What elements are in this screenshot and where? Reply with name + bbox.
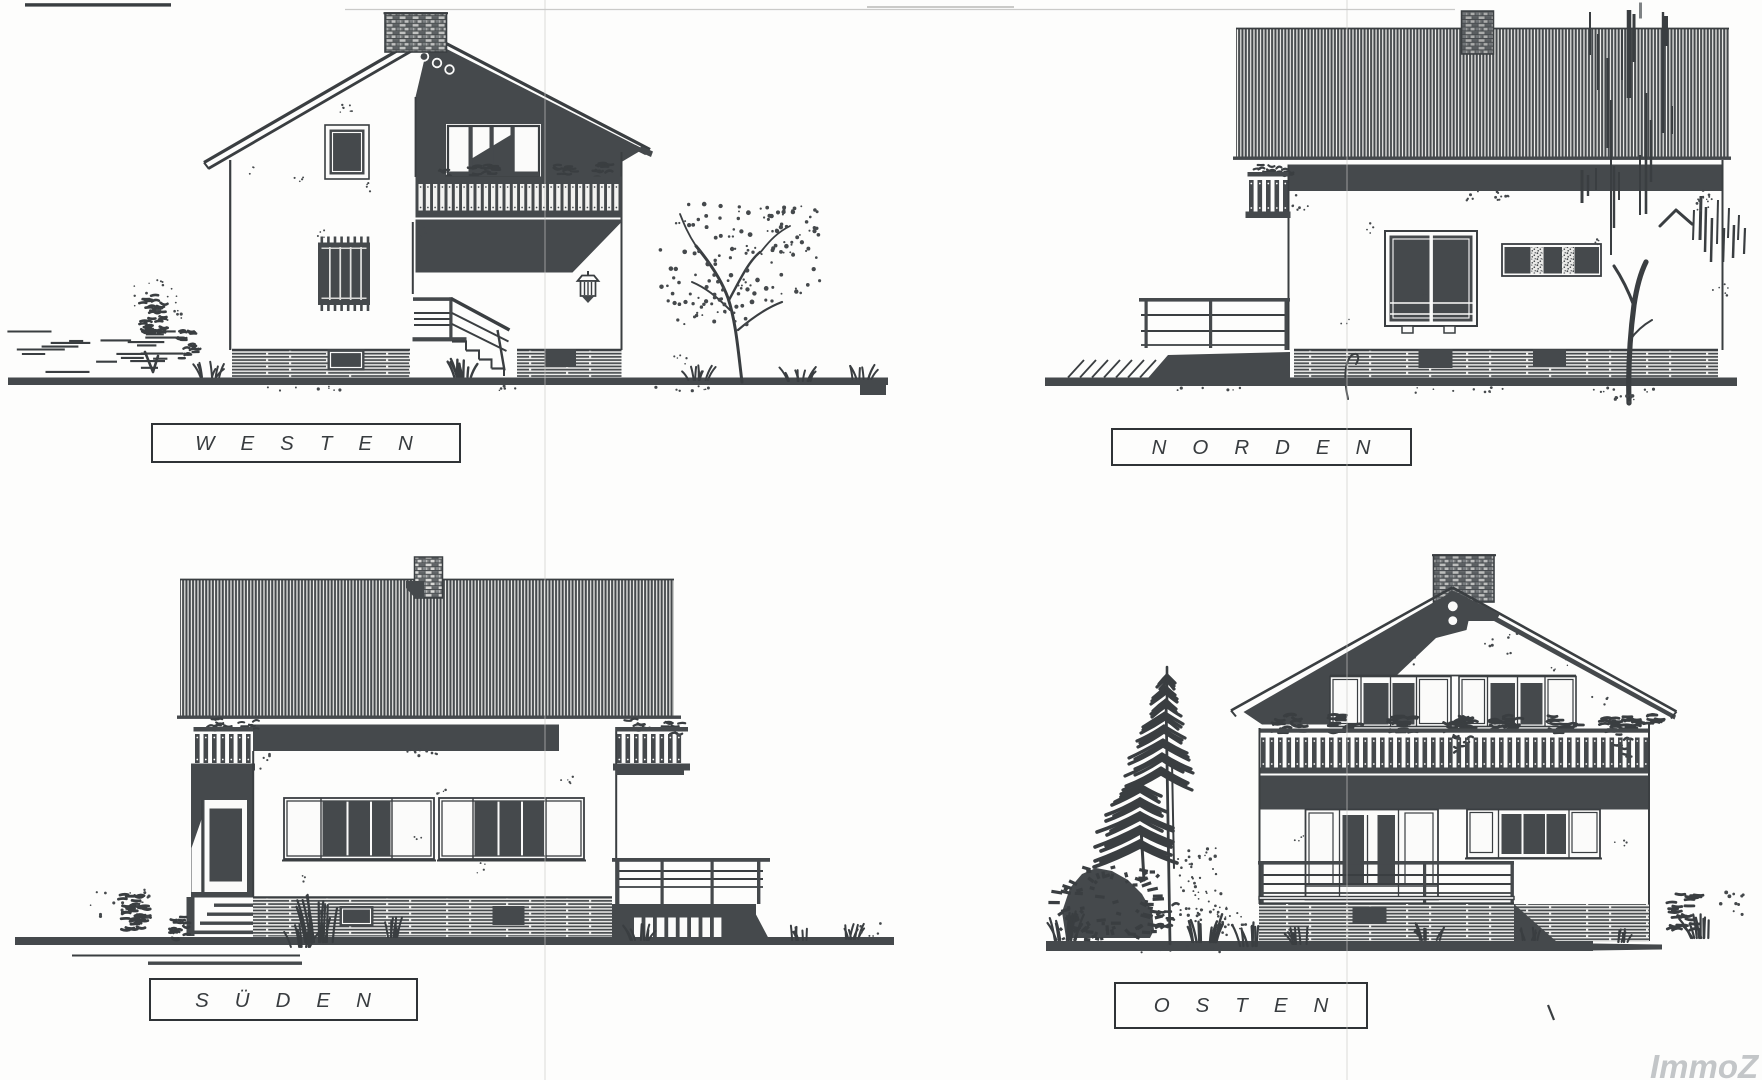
svg-text:WESTEN: WESTEN bbox=[195, 432, 439, 455]
svg-text:SÜDEN: SÜDEN bbox=[195, 989, 397, 1012]
svg-text:OSTEN: OSTEN bbox=[1154, 994, 1355, 1017]
svg-text:NORDEN: NORDEN bbox=[1152, 436, 1397, 459]
svg-text:ImmoZ: ImmoZ bbox=[1650, 1048, 1760, 1080]
